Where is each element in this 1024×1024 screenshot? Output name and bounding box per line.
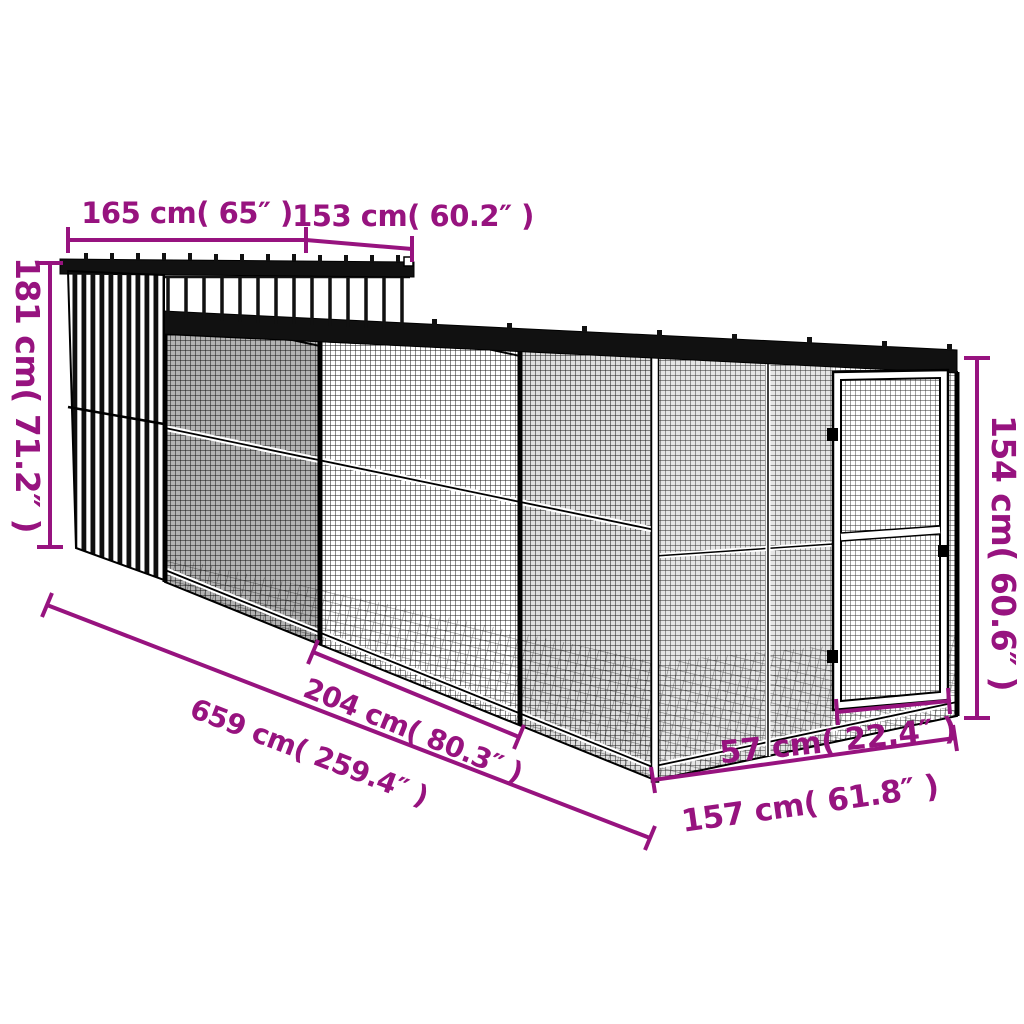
dim-coop-height-label: 181 cm( 71.2″ ) bbox=[8, 257, 47, 533]
coop-run-dimension-diagram: 165 cm( 65″ ) 153 cm( 60.2″ ) 181 cm( 71… bbox=[0, 0, 1024, 1024]
door-hinge-top bbox=[827, 428, 838, 441]
dim-roof-section-left-label: 165 cm( 65″ ) bbox=[81, 196, 293, 230]
corner-post bbox=[652, 356, 659, 782]
dim-roof-section-right-label: 153 cm( 60.2″ ) bbox=[292, 199, 534, 233]
diagram-page: 165 cm( 65″ ) 153 cm( 60.2″ ) 181 cm( 71… bbox=[0, 0, 1024, 1024]
door-hinge-bottom bbox=[827, 650, 838, 663]
door-latch bbox=[938, 545, 947, 557]
mesh-door bbox=[827, 370, 948, 710]
dim-run-height-label: 154 cm( 60.6″ ) bbox=[984, 415, 1023, 691]
coop-side-slat-panel bbox=[68, 271, 164, 580]
